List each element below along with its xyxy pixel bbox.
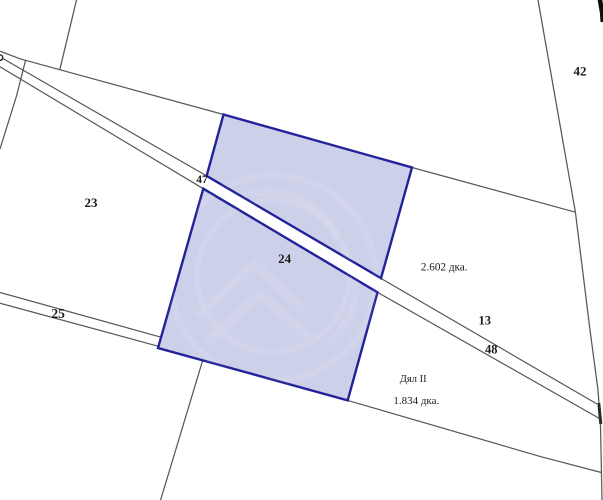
svg-text:23: 23 — [85, 195, 99, 210]
svg-text:42: 42 — [574, 64, 587, 79]
svg-text:Дял II: Дял II — [400, 374, 427, 385]
svg-text:48: 48 — [485, 342, 498, 356]
svg-text:24: 24 — [278, 251, 292, 266]
svg-text:47: 47 — [196, 174, 208, 186]
svg-text:2.602 дка.: 2.602 дка. — [421, 262, 468, 274]
svg-text:25: 25 — [51, 306, 65, 321]
svg-text:13: 13 — [478, 313, 491, 327]
svg-text:1.834 дка.: 1.834 дка. — [393, 395, 439, 407]
